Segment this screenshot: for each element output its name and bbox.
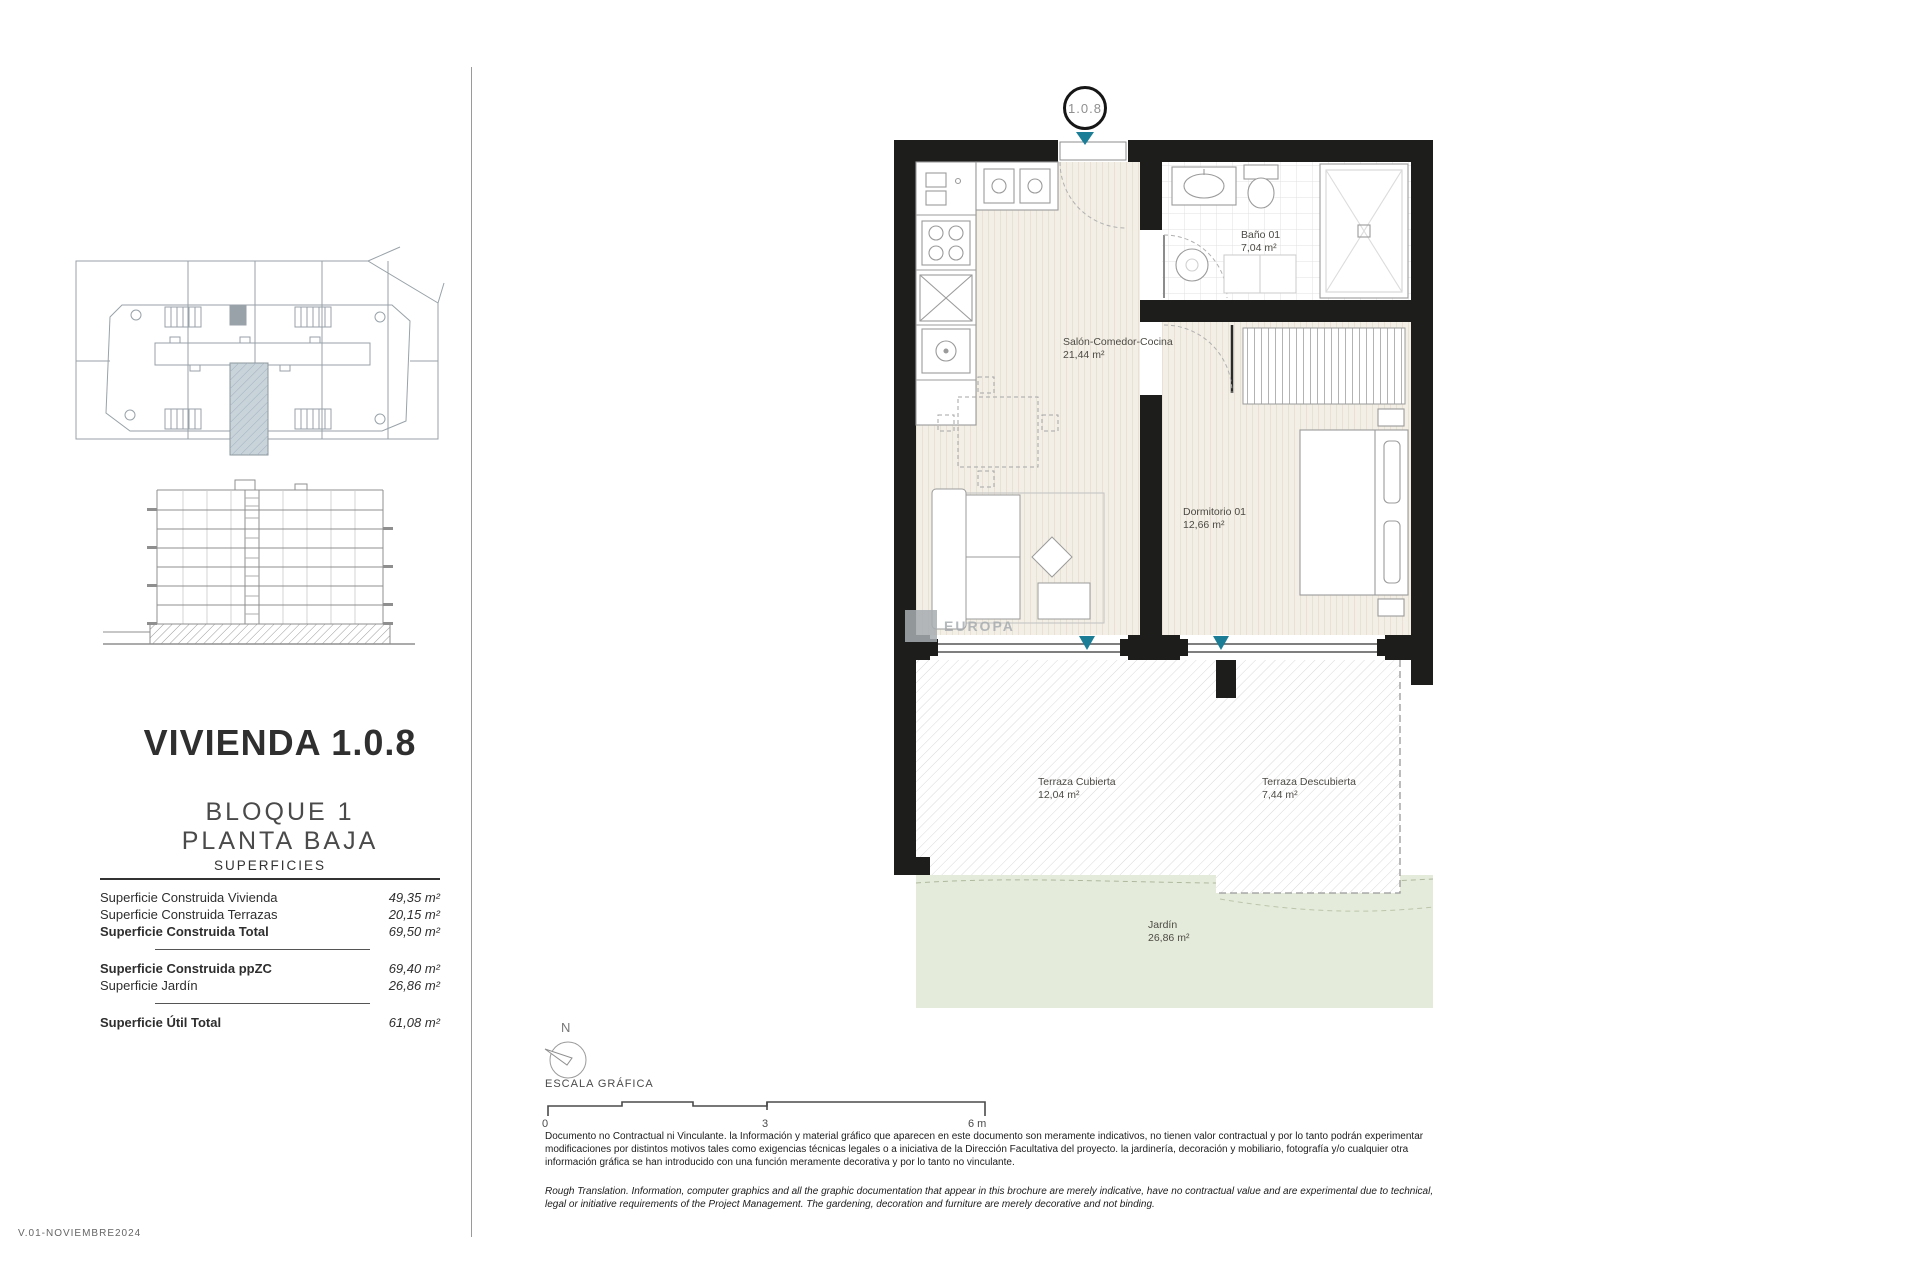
row-value: 69,40 m² [389, 960, 440, 977]
elevation-drawing [95, 472, 420, 662]
watermark-text: EUROPA [944, 618, 1015, 634]
row-value: 69,50 m² [389, 923, 440, 940]
scale-label: ESCALA GRÁFICA [545, 1078, 654, 1090]
table-row: Superficie Útil Total 61,08 m² [100, 1014, 440, 1031]
entrance-marker-icon [1076, 132, 1094, 145]
row-value: 20,15 m² [389, 906, 440, 923]
table-row: Superficie Construida Terrazas 20,15 m² [100, 906, 440, 923]
divider [155, 1003, 370, 1004]
superficies-table: SUPERFICIES Superficie Construida Vivien… [100, 858, 440, 1031]
floor-label: PLANTA BAJA [90, 827, 470, 856]
disclaimer-spanish: Documento no Contractual ni Vinculante. … [545, 1130, 1450, 1169]
scale-tick: 6 m [968, 1118, 986, 1130]
row-label: Superficie Útil Total [100, 1014, 221, 1031]
table-row: Superficie Jardín 26,86 m² [100, 977, 440, 994]
room-label-bano: Baño 01 7,04 m² [1241, 229, 1280, 254]
room-label-dormitorio: Dormitorio 01 12,66 m² [1183, 506, 1246, 531]
superficies-heading: SUPERFICIES [100, 858, 440, 878]
page-title: VIVIENDA 1.0.8 [90, 722, 470, 764]
divider [100, 878, 440, 880]
row-value: 49,35 m² [389, 889, 440, 906]
floorplan-drawing [880, 85, 1450, 1015]
plan-sheet: VIVIENDA 1.0.8 BLOQUE 1 PLANTA BAJA SUPE… [0, 0, 1920, 1280]
table-row: Superficie Construida ppZC 69,40 m² [100, 960, 440, 977]
room-label-jardin: Jardín 26,86 m² [1148, 919, 1189, 944]
watermark-logo: EUROPA [905, 610, 1015, 642]
row-label: Superficie Construida Terrazas [100, 906, 278, 923]
row-label: Superficie Construida ppZC [100, 960, 272, 977]
door-marker-icon [1213, 636, 1229, 650]
site-plan-drawing [70, 243, 445, 463]
divider [471, 67, 472, 1237]
row-value: 61,08 m² [389, 1014, 440, 1031]
scale-tick: 3 [762, 1118, 768, 1130]
version-label: V.01-NOVIEMBRE2024 [18, 1228, 141, 1239]
wardrobe [1243, 328, 1405, 404]
row-label: Superficie Construida Total [100, 923, 269, 940]
table-row: Superficie Construida Vivienda 49,35 m² [100, 889, 440, 906]
scale-tick: 0 [542, 1118, 548, 1130]
block-label: BLOQUE 1 [90, 798, 470, 827]
room-label-salon: Salón-Comedor-Cocina 21,44 m² [1063, 336, 1173, 361]
scale-bar [545, 1096, 995, 1120]
row-label: Superficie Construida Vivienda [100, 889, 278, 906]
logo-mark-icon [905, 610, 937, 642]
room-label-terraza-descubierta: Terraza Descubierta 7,44 m² [1262, 776, 1356, 801]
bed [1300, 409, 1408, 616]
room-label-terraza-cubierta: Terraza Cubierta 12,04 m² [1038, 776, 1116, 801]
disclaimer-block: Documento no Contractual ni Vinculante. … [545, 1130, 1450, 1211]
door-marker-icon [1079, 636, 1095, 650]
unit-badge-label: 1.0.8 [1068, 101, 1102, 116]
row-label: Superficie Jardín [100, 977, 198, 994]
divider [155, 949, 370, 950]
disclaimer-english: Rough Translation. Information, computer… [545, 1185, 1450, 1211]
unit-badge: 1.0.8 [1063, 86, 1107, 130]
table-row: Superficie Construida Total 69,50 m² [100, 923, 440, 940]
row-value: 26,86 m² [389, 977, 440, 994]
